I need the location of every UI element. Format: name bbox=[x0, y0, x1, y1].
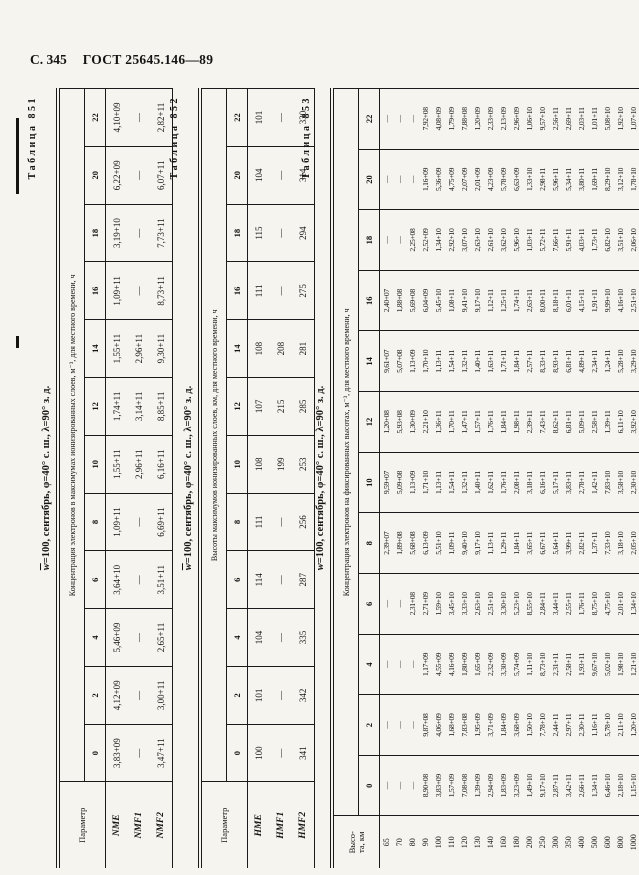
cell: — bbox=[270, 204, 292, 262]
cell: 5,45+10 bbox=[432, 270, 445, 331]
cell: — bbox=[128, 493, 150, 551]
cell: 2,78+11 bbox=[575, 452, 588, 513]
cell: 5,78+10 bbox=[601, 695, 614, 756]
cell: 5,34+11 bbox=[562, 149, 575, 210]
cell: 1,39+09 bbox=[471, 755, 484, 816]
cell: 3,07+10 bbox=[458, 210, 471, 271]
cell: 1,47+11 bbox=[458, 392, 471, 453]
cell: 3,33+10 bbox=[458, 574, 471, 635]
row-label: 70 bbox=[393, 816, 406, 868]
cell: 6,16+11 bbox=[536, 452, 549, 513]
cell: 2,39+07 bbox=[380, 513, 394, 574]
cell: 8,55+10 bbox=[523, 574, 536, 635]
cell: 1,32+11 bbox=[458, 331, 471, 392]
cell: 3,45+10 bbox=[445, 574, 458, 635]
cell: — bbox=[380, 574, 394, 635]
row-label: 160 bbox=[497, 816, 510, 868]
cell: 6,04+09 bbox=[419, 270, 432, 331]
cell: 6,81+11 bbox=[562, 392, 575, 453]
cell: 1,20+08 bbox=[380, 392, 394, 453]
hour-header: 20 bbox=[227, 146, 248, 204]
hour-header: 0 bbox=[227, 724, 248, 782]
cell: — bbox=[128, 724, 150, 782]
cell: 2,92+10 bbox=[445, 210, 458, 271]
cell: 1,16+11 bbox=[588, 695, 601, 756]
hour-header: 6 bbox=[359, 574, 380, 635]
cell: 1,59+10 bbox=[432, 574, 445, 635]
cell: 1,13+09 bbox=[406, 331, 419, 392]
row-label: 110 bbox=[445, 816, 458, 868]
cell: 8,73+10 bbox=[536, 634, 549, 695]
cell: 3,42+11 bbox=[562, 755, 575, 816]
cell: 8,75+10 bbox=[588, 574, 601, 635]
hour-header: 20 bbox=[359, 149, 380, 210]
cell: 5,78+09 bbox=[497, 149, 510, 210]
cell: 2,63+10 bbox=[471, 210, 484, 271]
cell: 4,75+09 bbox=[445, 149, 458, 210]
cell: 1,95+09 bbox=[471, 695, 484, 756]
table-title-text: =100, сентябрь, φ=40° с. ш., λ=90° з. д. bbox=[183, 386, 194, 563]
hour-header: 4 bbox=[359, 634, 380, 695]
cell: 215 bbox=[270, 378, 292, 436]
hour-header: 0 bbox=[85, 724, 106, 782]
cell: 4,03+11 bbox=[575, 210, 588, 271]
row-label: 180 bbox=[510, 816, 523, 868]
cell: 1,83+09 bbox=[497, 755, 510, 816]
cell: — bbox=[393, 634, 406, 695]
table-row: HMF1—————199215208———— bbox=[270, 89, 292, 869]
hour-header: 20 bbox=[85, 146, 106, 204]
cell: — bbox=[406, 89, 419, 150]
cell: 1,50+10 bbox=[523, 695, 536, 756]
cell: 2,05+10 bbox=[627, 513, 639, 574]
cell: 8,18+11 bbox=[549, 270, 562, 331]
cell: 8,33+11 bbox=[536, 331, 549, 392]
hour-header: 22 bbox=[359, 89, 380, 150]
cell: 5,08+10 bbox=[601, 89, 614, 150]
cell: 2,40+07 bbox=[380, 270, 394, 331]
cell: 6,46+10 bbox=[601, 755, 614, 816]
cell: 2,31+11 bbox=[549, 634, 562, 695]
cell: 2,06+10 bbox=[627, 210, 639, 271]
cell: 1,06+10 bbox=[523, 89, 536, 150]
table-row: 5001,34+111,16+119,67+108,75+101,37+111,… bbox=[588, 89, 601, 869]
cell: 1,71+11 bbox=[497, 331, 510, 392]
cell: 1,12+11 bbox=[484, 270, 497, 331]
cell: 1,78+10 bbox=[627, 149, 639, 210]
cell: 1,79+09 bbox=[445, 89, 458, 150]
row-label: 200 bbox=[523, 816, 536, 868]
cell: 1,13+11 bbox=[484, 513, 497, 574]
cell: 5,93+08 bbox=[393, 392, 406, 453]
cell: 199 bbox=[270, 435, 292, 493]
cell: 2,25+08 bbox=[406, 210, 419, 271]
cell: 4,55+09 bbox=[432, 634, 445, 695]
row-label: 120 bbox=[458, 816, 471, 868]
cell: 5,72+11 bbox=[536, 210, 549, 271]
cell: 2,01+10 bbox=[614, 574, 627, 635]
cell: 2,13+09 bbox=[497, 89, 510, 150]
table-853-strip: Таблица 853 w=100, сентябрь, φ=40° с. ш.… bbox=[300, 88, 639, 426]
cell: 2,33+09 bbox=[484, 89, 497, 150]
cell: — bbox=[393, 89, 406, 150]
cell: 1,24+11 bbox=[601, 331, 614, 392]
cell: 7,83+10 bbox=[601, 452, 614, 513]
cell: 1,20+09 bbox=[471, 89, 484, 150]
cell: 4,06+09 bbox=[432, 695, 445, 756]
row-label: 130 bbox=[471, 816, 484, 868]
table-row: 1402,94+093,71+092,32+092,51+101,13+111,… bbox=[484, 89, 497, 869]
cell: 5,64+11 bbox=[549, 513, 562, 574]
table-row: NMF1—————2,96+113,14+112,96+11———— bbox=[128, 89, 150, 869]
table-caption: Таблица 851 bbox=[26, 88, 40, 868]
cell: 6,82+10 bbox=[601, 210, 614, 271]
cell: 1,13+11 bbox=[432, 452, 445, 513]
cell: 4,10+09 bbox=[106, 89, 129, 147]
cell: — bbox=[380, 695, 394, 756]
cell: 5,36+09 bbox=[432, 149, 445, 210]
cell: — bbox=[393, 149, 406, 210]
cell: 1,08+11 bbox=[445, 270, 458, 331]
cell: 100 bbox=[248, 724, 271, 782]
cell: 5,09+08 bbox=[393, 452, 406, 513]
cell: 1,49+10 bbox=[523, 755, 536, 816]
cell: 1,07+10 bbox=[627, 89, 639, 150]
hour-header: 10 bbox=[359, 452, 380, 513]
cell: 2,58+11 bbox=[562, 634, 575, 695]
cell: 3,58+10 bbox=[614, 452, 627, 513]
cell: 5,51+10 bbox=[432, 513, 445, 574]
cell: — bbox=[393, 695, 406, 756]
cell: 5,17+11 bbox=[549, 452, 562, 513]
cell: 1,03+11 bbox=[523, 210, 536, 271]
row-label: 90 bbox=[419, 816, 432, 868]
table-row: 1101,57+091,68+094,16+093,45+101,09+111,… bbox=[445, 89, 458, 869]
cell: 1,54+11 bbox=[445, 452, 458, 513]
cell: 1,63+11 bbox=[484, 331, 497, 392]
cell: — bbox=[380, 634, 394, 695]
cell: 7,08+08 bbox=[458, 755, 471, 816]
table-row: 1207,08+087,83+081,80+093,33+109,40+101,… bbox=[458, 89, 471, 869]
cell: 1,16+09 bbox=[419, 149, 432, 210]
cell: 2,63+10 bbox=[471, 574, 484, 635]
cell: — bbox=[393, 574, 406, 635]
cell: 2,03+11 bbox=[575, 89, 588, 150]
cell: 1,57+11 bbox=[471, 392, 484, 453]
hour-header: 18 bbox=[227, 204, 248, 262]
cell: 9,87+08 bbox=[419, 695, 432, 756]
row-label: HME bbox=[248, 782, 271, 868]
cell: 2,18+10 bbox=[614, 755, 627, 816]
cell: 2,82+11 bbox=[575, 513, 588, 574]
cell: — bbox=[270, 551, 292, 609]
cell: 101 bbox=[248, 666, 271, 724]
cell: 1,92+10 bbox=[614, 89, 627, 150]
cell: 2,39+11 bbox=[523, 392, 536, 453]
cell: 1,40+11 bbox=[471, 331, 484, 392]
cell: 1,76+11 bbox=[497, 452, 510, 513]
cell: 1,57+09 bbox=[445, 755, 458, 816]
cell: 4,08+09 bbox=[432, 89, 445, 150]
cell: 1,40+11 bbox=[471, 452, 484, 513]
cell: 1,13+11 bbox=[432, 331, 445, 392]
cell: 3,92+10 bbox=[627, 392, 639, 453]
cell: 115 bbox=[248, 204, 271, 262]
cell: 2,71+09 bbox=[419, 574, 432, 635]
cell: 3,14+11 bbox=[128, 378, 150, 436]
cell: 7,78+10 bbox=[536, 695, 549, 756]
cell: — bbox=[393, 755, 406, 816]
cell: 2,69+11 bbox=[562, 89, 575, 150]
cell: 7,66+11 bbox=[549, 210, 562, 271]
hour-header: 18 bbox=[85, 204, 106, 262]
table-row: 1003,83+094,06+094,55+091,59+105,51+101,… bbox=[432, 89, 445, 869]
cell: 3,64+10 bbox=[106, 551, 129, 609]
cell: 6,13+09 bbox=[419, 513, 432, 574]
cell: 1,09+11 bbox=[106, 493, 129, 551]
cell: 3,83+09 bbox=[106, 724, 129, 782]
row-label: 1000 bbox=[627, 816, 639, 868]
cell: 2,61+10 bbox=[484, 210, 497, 271]
cell: 2,30+11 bbox=[575, 695, 588, 756]
table-row: 10001,15+101,20+101,21+101,34+102,05+102… bbox=[627, 89, 639, 869]
hour-header: 2 bbox=[359, 695, 380, 756]
cell: 1,84+11 bbox=[497, 392, 510, 453]
cell: 1,73+11 bbox=[588, 210, 601, 271]
cell: 3,80+11 bbox=[575, 149, 588, 210]
cell: 4,16+10 bbox=[614, 270, 627, 331]
cell: 2,51+10 bbox=[627, 270, 639, 331]
scan-artifact bbox=[16, 118, 19, 194]
cell: 2,52+09 bbox=[419, 210, 432, 271]
cell: 3,19+10 bbox=[106, 204, 129, 262]
hour-header: 14 bbox=[227, 320, 248, 378]
row-label: 80 bbox=[406, 816, 419, 868]
cell: — bbox=[270, 493, 292, 551]
cell: 5,91+11 bbox=[562, 210, 575, 271]
cell: 1,34+10 bbox=[627, 574, 639, 635]
cell: 6,81+11 bbox=[562, 331, 575, 392]
cell: 4,12+09 bbox=[106, 666, 129, 724]
table-row: 70————1,89+085,09+085,93+085,07+081,88+0… bbox=[393, 89, 406, 869]
cell: 2,97+11 bbox=[562, 695, 575, 756]
param-header: Параметр bbox=[200, 782, 248, 868]
table-row: 1601,83+091,84+093,30+093,30+101,29+111,… bbox=[497, 89, 510, 869]
hour-header: 8 bbox=[227, 493, 248, 551]
cell: 2,32+09 bbox=[484, 634, 497, 695]
cell: 1,21+10 bbox=[627, 634, 639, 695]
cell: 1,76+11 bbox=[484, 392, 497, 453]
cell: 2,58+11 bbox=[588, 392, 601, 453]
page-number: С. 345 bbox=[30, 52, 67, 67]
cell: 3,62+10 bbox=[497, 210, 510, 271]
table-row: 3002,87+112,44+112,31+113,44+115,64+115,… bbox=[549, 89, 562, 869]
cell: 108 bbox=[248, 435, 271, 493]
cell: 8,00+11 bbox=[536, 270, 549, 331]
cell: — bbox=[128, 609, 150, 667]
scan-artifact bbox=[16, 336, 19, 348]
cell: — bbox=[270, 89, 292, 147]
cell: 9,41+10 bbox=[458, 270, 471, 331]
table-row: 1301,39+091,95+091,65+092,63+109,17+101,… bbox=[471, 89, 484, 869]
cell: 1,70+10 bbox=[419, 331, 432, 392]
cell: 107 bbox=[248, 378, 271, 436]
cell: 1,36+11 bbox=[432, 392, 445, 453]
cell: 5,96+11 bbox=[549, 149, 562, 210]
cell: 7,33+10 bbox=[601, 513, 614, 574]
table-row: 2001,49+101,50+101,11+108,55+103,65+113,… bbox=[523, 89, 536, 869]
cell: 1,34+11 bbox=[588, 755, 601, 816]
table-row: 2509,17+107,78+108,73+102,84+116,67+116,… bbox=[536, 89, 549, 869]
cell: 1,65+09 bbox=[471, 634, 484, 695]
row-label: 300 bbox=[549, 816, 562, 868]
row-label: 400 bbox=[575, 816, 588, 868]
cell: 3,99+11 bbox=[562, 513, 575, 574]
cell: 6,67+11 bbox=[536, 513, 549, 574]
hour-header: 14 bbox=[359, 331, 380, 392]
cell: 3,18+11 bbox=[523, 452, 536, 513]
cell: 1,91+11 bbox=[588, 270, 601, 331]
cell: 1,01+11 bbox=[588, 89, 601, 150]
cell: 2,31+08 bbox=[406, 574, 419, 635]
cell: 5,02+10 bbox=[601, 634, 614, 695]
cell: 4,16+09 bbox=[445, 634, 458, 695]
table-row: 6006,46+105,78+105,02+104,75+107,33+107,… bbox=[601, 89, 614, 869]
cell: 1,29+11 bbox=[497, 513, 510, 574]
cell: 1,80+09 bbox=[458, 634, 471, 695]
table-row: 8002,18+102,11+101,98+102,01+103,18+103,… bbox=[614, 89, 627, 869]
row-label: 250 bbox=[536, 816, 549, 868]
cell: 2,96+11 bbox=[128, 435, 150, 493]
table-title: w=100, сентябрь, φ=40° с. ш., λ=90° з. д… bbox=[182, 88, 198, 868]
cell: 7,88+08 bbox=[458, 89, 471, 150]
cell: 3,12+10 bbox=[614, 149, 627, 210]
hour-header: 12 bbox=[359, 392, 380, 453]
cell: 1,55+11 bbox=[106, 320, 129, 378]
cell: 4,89+11 bbox=[575, 331, 588, 392]
cell: 9,99+10 bbox=[601, 270, 614, 331]
cell: 9,67+10 bbox=[588, 634, 601, 695]
cell: 2,63+11 bbox=[523, 270, 536, 331]
cell: 108 bbox=[248, 320, 271, 378]
table-row: 4002,66+112,30+111,93+111,76+112,82+112,… bbox=[575, 89, 588, 869]
cell: 1,98+10 bbox=[614, 634, 627, 695]
row-label: HMF1 bbox=[270, 782, 292, 868]
cell: 9,17+10 bbox=[471, 513, 484, 574]
cell: 3,83+11 bbox=[562, 452, 575, 513]
w-index-symbol: w bbox=[183, 563, 194, 570]
hour-header: 22 bbox=[85, 89, 106, 147]
cell: 3,68+09 bbox=[510, 695, 523, 756]
cell: 1,09+11 bbox=[106, 262, 129, 320]
cell: 2,30+10 bbox=[627, 452, 639, 513]
cell: 1,88+08 bbox=[393, 270, 406, 331]
hour-header: 14 bbox=[85, 320, 106, 378]
cell: 3,30+09 bbox=[497, 634, 510, 695]
cell: 4,15+11 bbox=[575, 270, 588, 331]
hour-header: 10 bbox=[227, 435, 248, 493]
param-header: Высо-та, км bbox=[332, 816, 380, 868]
cell: 2,84+11 bbox=[536, 574, 549, 635]
cell: 6,11+10 bbox=[614, 392, 627, 453]
table-row: 908,90+089,87+081,17+092,71+096,13+091,7… bbox=[419, 89, 432, 869]
cell: — bbox=[380, 89, 394, 150]
cell: 2,01+09 bbox=[471, 149, 484, 210]
cell: 2,11+10 bbox=[614, 695, 627, 756]
cell: 1,74+11 bbox=[106, 378, 129, 436]
cell: 1,70+11 bbox=[445, 392, 458, 453]
cell: 1,25+11 bbox=[497, 270, 510, 331]
cell: 1,34+10 bbox=[432, 210, 445, 271]
cell: 2,66+11 bbox=[575, 755, 588, 816]
row-label: 100 bbox=[432, 816, 445, 868]
cell: 9,17+10 bbox=[536, 755, 549, 816]
row-label: 800 bbox=[614, 816, 627, 868]
cell: 2,94+09 bbox=[484, 755, 497, 816]
hour-header: 22 bbox=[227, 89, 248, 147]
cell: — bbox=[270, 666, 292, 724]
row-label: 140 bbox=[484, 816, 497, 868]
cell: — bbox=[270, 262, 292, 320]
cell: 1,69+11 bbox=[588, 149, 601, 210]
row-label: NMF1 bbox=[128, 782, 150, 868]
cell: 8,62+11 bbox=[549, 392, 562, 453]
param-header: Параметр bbox=[58, 782, 106, 868]
cell: — bbox=[380, 149, 394, 210]
cell: 6,22+09 bbox=[106, 146, 129, 204]
cell: 1,11+10 bbox=[523, 634, 536, 695]
cell: 1,17+09 bbox=[419, 634, 432, 695]
cell: 5,28+10 bbox=[614, 331, 627, 392]
cell: 2,21+10 bbox=[419, 392, 432, 453]
cell: 1,33+10 bbox=[523, 149, 536, 210]
cell: 8,29+10 bbox=[601, 149, 614, 210]
table-853: Высо-та, кмКонцентрация электронов на фи… bbox=[330, 88, 639, 868]
cell: 111 bbox=[248, 262, 271, 320]
cell: 2,56+11 bbox=[549, 89, 562, 150]
cell: 1,54+11 bbox=[445, 331, 458, 392]
cell: 1,20+10 bbox=[627, 695, 639, 756]
cell: 3,30+10 bbox=[497, 574, 510, 635]
cell: 1,89+08 bbox=[393, 513, 406, 574]
cell: 1,68+09 bbox=[445, 695, 458, 756]
cell: 1,37+11 bbox=[588, 513, 601, 574]
cell: — bbox=[380, 755, 394, 816]
page: С. 345ГОСТ 25645.146—89 Таблица 851 w=10… bbox=[0, 0, 639, 875]
cell: 9,17+10 bbox=[471, 270, 484, 331]
hour-header: 16 bbox=[227, 262, 248, 320]
hour-header: 16 bbox=[359, 270, 380, 331]
cell: 9,59+07 bbox=[380, 452, 394, 513]
cell: — bbox=[406, 634, 419, 695]
cell: 5,74+09 bbox=[510, 634, 523, 695]
cell: 3,18+10 bbox=[614, 513, 627, 574]
cell: 1,39+11 bbox=[601, 392, 614, 453]
cell: 3,65+11 bbox=[523, 513, 536, 574]
table-title: w=100, сентябрь, φ=40° с. ш., λ=90° з. д… bbox=[314, 88, 330, 868]
cell: 5,09+11 bbox=[575, 392, 588, 453]
cell: — bbox=[393, 210, 406, 271]
cell: 3,29+10 bbox=[627, 331, 639, 392]
row-label: 350 bbox=[562, 816, 575, 868]
cell: 104 bbox=[248, 609, 271, 667]
cell: 7,92+08 bbox=[419, 89, 432, 150]
table-row: HME100101104114111108107108111115104101 bbox=[248, 89, 271, 869]
cell: 5,96+10 bbox=[510, 210, 523, 271]
cell: 5,68+08 bbox=[406, 513, 419, 574]
cell: 1,76+11 bbox=[575, 574, 588, 635]
cell: 2,07+09 bbox=[458, 149, 471, 210]
